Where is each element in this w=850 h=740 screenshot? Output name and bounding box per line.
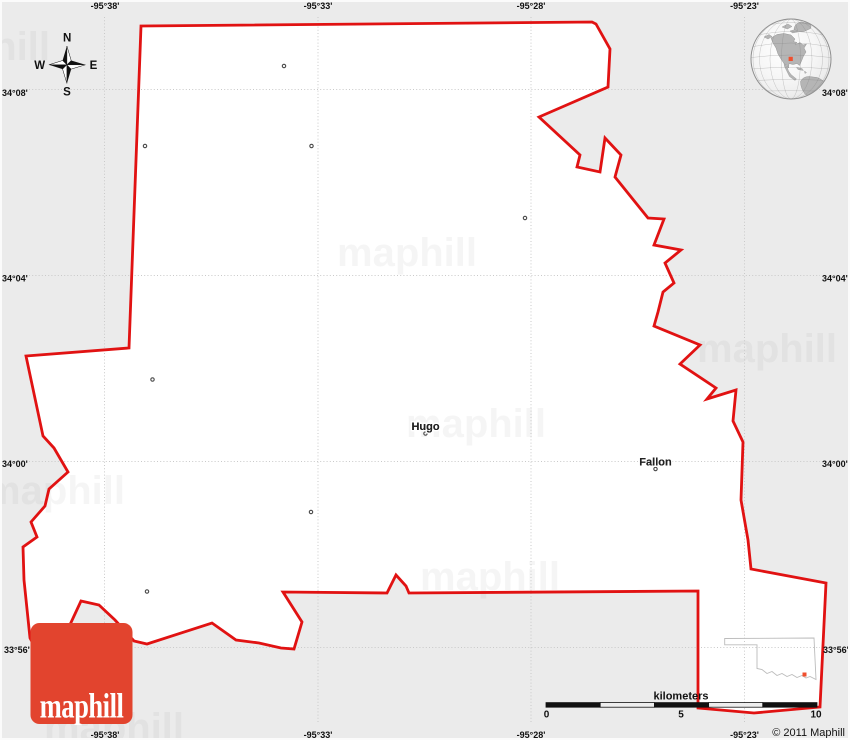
svg-text:kilometers: kilometers	[653, 691, 708, 703]
svg-text:-95°28': -95°28'	[517, 1, 546, 11]
svg-text:33°56': 33°56'	[823, 645, 849, 655]
svg-text:Fallon: Fallon	[639, 457, 672, 469]
svg-text:34°04': 34°04'	[2, 274, 28, 284]
svg-text:34°00': 34°00'	[822, 459, 848, 469]
svg-text:maphill: maphill	[337, 231, 477, 275]
svg-text:34°04': 34°04'	[822, 274, 848, 284]
svg-text:33°56': 33°56'	[4, 645, 30, 655]
svg-text:© 2011 Maphill: © 2011 Maphill	[772, 727, 845, 739]
svg-text:E: E	[90, 60, 98, 72]
svg-text:-95°23': -95°23'	[730, 1, 759, 11]
svg-text:-95°33': -95°33'	[304, 1, 333, 11]
svg-text:maphill: maphill	[40, 686, 125, 725]
svg-text:Hugo: Hugo	[411, 421, 439, 433]
svg-text:34°08': 34°08'	[822, 88, 848, 98]
svg-text:W: W	[34, 60, 45, 72]
svg-text:-95°38': -95°38'	[91, 1, 120, 11]
svg-text:10: 10	[810, 710, 822, 721]
svg-text:5: 5	[678, 710, 684, 721]
svg-text:34°00': 34°00'	[2, 459, 28, 469]
svg-text:34°08': 34°08'	[2, 88, 28, 98]
svg-text:S: S	[63, 87, 71, 99]
svg-text:N: N	[63, 33, 71, 45]
svg-text:maphill: maphill	[697, 327, 837, 371]
svg-text:0: 0	[544, 710, 550, 721]
